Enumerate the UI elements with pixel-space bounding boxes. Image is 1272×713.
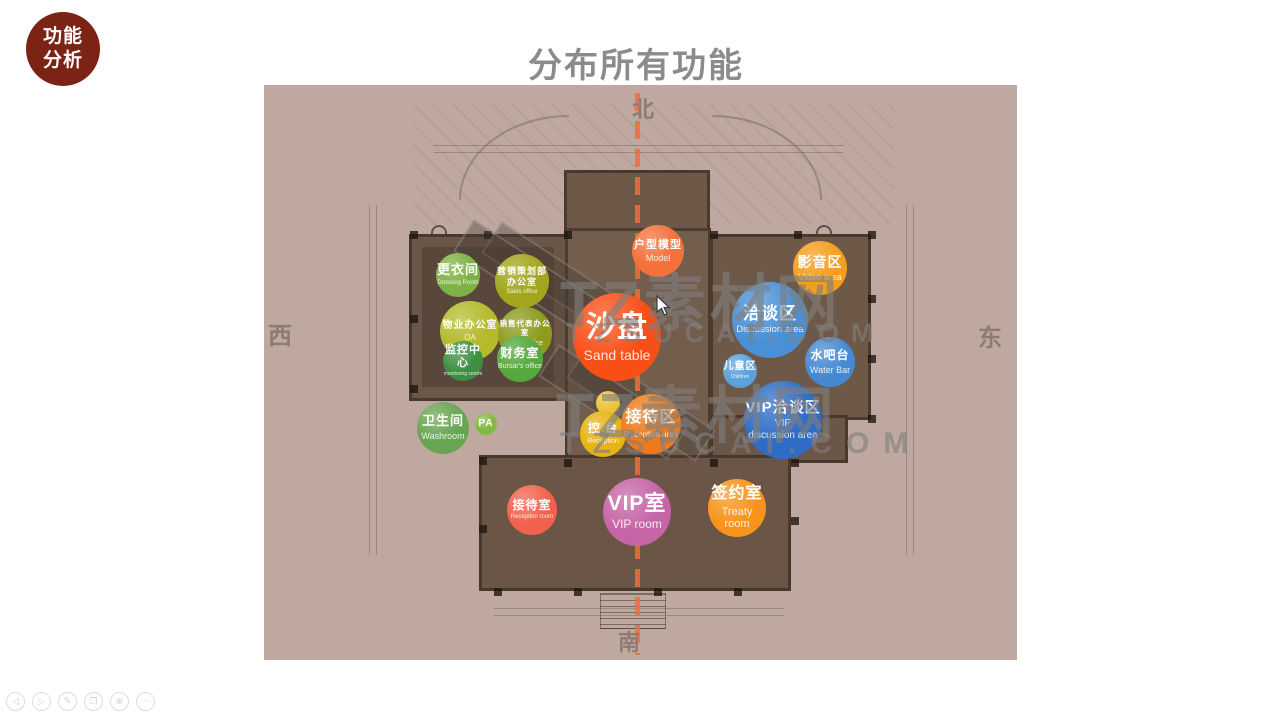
zone-finance-room: 财务室Bursar's office [497, 336, 543, 382]
zone-treaty-room: 签约室Treaty room [708, 479, 766, 537]
zone-reception-room: 接待室Reception room [507, 485, 557, 535]
zone-sublabel: Bursar's office [498, 363, 542, 371]
toolbar-pen-tool-button[interactable]: ✎ [58, 692, 77, 711]
watermark-domain-text: TZSUCAI.COM [566, 318, 885, 349]
zone-label: 营销策划部 [497, 266, 547, 276]
page-title: 分布所有功能 [0, 38, 1272, 87]
zone-label: 签约室 [711, 485, 762, 503]
watermark-domain-text: TZSUCAI.COM [560, 427, 922, 461]
zone-label: 接待室 [512, 499, 551, 513]
zone-label: 财务室 [500, 347, 539, 361]
zone-sublabel: Sand table [584, 347, 651, 363]
toolbar-all-slides-button[interactable]: ❐ [84, 692, 103, 711]
zone-washroom: 卫生间Washroom [417, 402, 469, 454]
zone-label-line2: 办公室 [507, 277, 537, 287]
zone-label: PA [478, 418, 493, 430]
presenter-toolbar: ◁▷✎❐⊕⋯ [6, 692, 155, 711]
zone-vip-room: VIP室VIP room [603, 478, 671, 546]
zone-sublabel: Dressing Room [437, 280, 478, 287]
zone-label: 卫生间 [422, 414, 464, 429]
toolbar-zoom-tool-button[interactable]: ⊕ [110, 692, 129, 711]
slide-canvas: 北 南 西 东 更衣间Dressing Room营销策划部办公室Sales of… [264, 85, 1017, 660]
zone-pa-room: PA [475, 413, 497, 435]
toolbar-next-slide-button[interactable]: ▷ [32, 692, 51, 711]
zone-label: 物业办公室 [443, 320, 498, 332]
zone-monitoring-center: 监控中心monitoring centre [443, 341, 483, 381]
toolbar-more-options-button[interactable]: ⋯ [136, 692, 155, 711]
zone-label: 更衣间 [437, 263, 479, 278]
zone-label: 水吧台 [810, 349, 849, 363]
zone-sublabel: VIP room [612, 518, 662, 532]
toolbar-previous-slide-button[interactable]: ◁ [6, 692, 25, 711]
zone-label: 监控中心 [443, 344, 483, 369]
zone-label: VIP室 [608, 492, 667, 516]
zone-sublabel: Treaty room [708, 506, 766, 531]
zone-marketing-office: 营销策划部办公室Sales office [495, 254, 549, 308]
mouse-cursor [656, 295, 672, 317]
zone-sublabel: Reception room [511, 514, 553, 521]
zone-sublabel: monitoring centre [444, 372, 483, 378]
zone-dressing-room: 更衣间Dressing Room [436, 253, 480, 297]
zone-label: 户型模型 [634, 239, 682, 252]
zone-sublabel: Sales office [507, 289, 538, 296]
zone-sublabel: Washroom [421, 431, 464, 441]
zone-label: 销售代表办公室 [498, 320, 552, 337]
